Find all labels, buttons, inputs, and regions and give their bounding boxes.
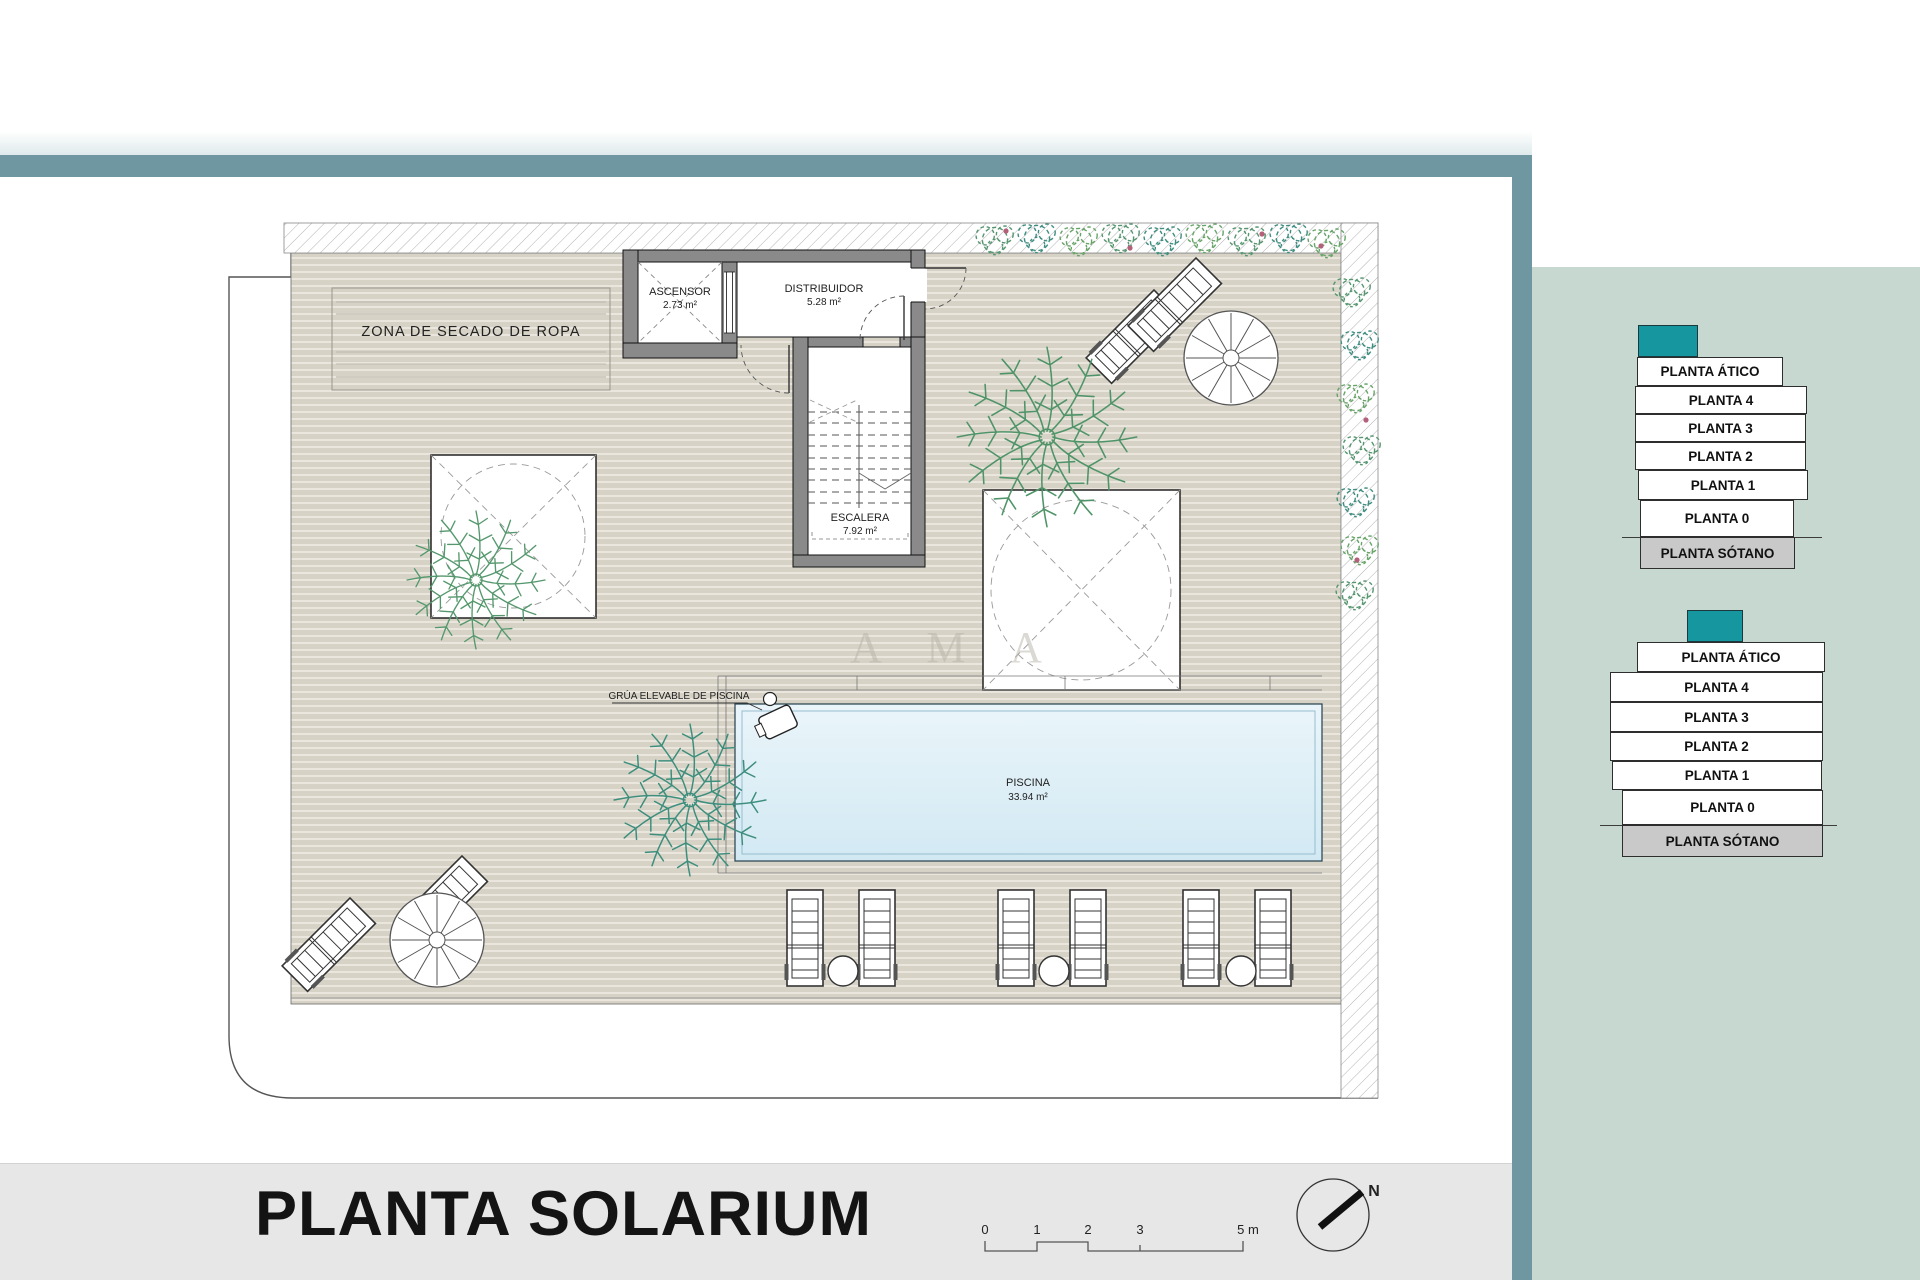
ascensor-area: 2.73 m² <box>663 300 698 311</box>
side-table <box>1039 956 1069 986</box>
sunbed <box>996 890 1037 986</box>
parasol <box>1184 311 1278 405</box>
parasol <box>390 893 484 987</box>
side-table <box>828 956 858 986</box>
site-boundary <box>229 223 1378 1098</box>
distribuidor-label: DISTRIBUIDOR <box>785 283 864 295</box>
sunbed <box>857 890 898 986</box>
ascensor-label: ASCENSOR <box>649 286 711 298</box>
stack1-level-p4: PLANTA 4 <box>1635 386 1807 414</box>
sunbed <box>1253 890 1294 986</box>
sunbed <box>1181 890 1222 986</box>
zona-secado-label: ZONA DE SECADO DE ROPA <box>361 324 580 340</box>
core-block: ASCENSOR 2.73 m² DISTRIBUIDOR 5.28 m² ES… <box>623 250 966 567</box>
hatch-band-top <box>284 223 1378 253</box>
stack2-level-sotano: PLANTA SÓTANO <box>1622 825 1823 857</box>
stack2-level-atico: PLANTA ÁTICO <box>1637 642 1825 672</box>
sunbed-corner-topright <box>1084 256 1278 405</box>
stack1-level-p1: PLANTA 1 <box>1638 470 1808 500</box>
top-accent-bar <box>0 155 1532 177</box>
right-accent-bar <box>1512 155 1532 1280</box>
page: PLANTA SOLARIUM <box>0 0 1920 1280</box>
accent-bar-glow <box>0 131 1532 155</box>
sunbed <box>785 890 826 986</box>
deck-area <box>291 253 1341 1004</box>
palm-tree <box>957 347 1136 526</box>
stack2-level-p0: PLANTA 0 <box>1622 790 1823 825</box>
stack2-level-p1: PLANTA 1 <box>1612 761 1822 790</box>
stack2-roof-block <box>1687 610 1743 642</box>
sunbed <box>280 896 377 993</box>
pool-curb-lines <box>718 676 1322 873</box>
stack1-level-atico: PLANTA ÁTICO <box>1637 357 1783 386</box>
palm-tree <box>407 511 545 649</box>
sunbed <box>1126 256 1223 353</box>
sunbed <box>1068 890 1109 986</box>
stack2-level-p4: PLANTA 4 <box>1610 672 1823 702</box>
piscina-area: 33.94 m² <box>1008 792 1048 803</box>
stack1-roof-block <box>1638 325 1698 357</box>
skylight-right <box>983 490 1180 690</box>
watermark: A M A <box>850 623 1060 672</box>
pool-hoist: GRÚA ELEVABLE DE PISCINA <box>609 689 799 743</box>
stack1-level-p2: PLANTA 2 <box>1635 442 1806 470</box>
hatch-band-right <box>1341 223 1378 1098</box>
pool: PISCINA 33.94 m² <box>735 704 1322 861</box>
escalera-area: 7.92 m² <box>843 526 878 537</box>
sunbed-corner-bottomleft <box>280 854 489 993</box>
stack1-level-p3: PLANTA 3 <box>1635 414 1806 442</box>
skylight-left <box>431 455 596 618</box>
stack2-level-p3: PLANTA 3 <box>1610 702 1823 732</box>
distribuidor-area: 5.28 m² <box>807 297 842 308</box>
piscina-label: PISCINA <box>1006 777 1051 789</box>
grua-label: GRÚA ELEVABLE DE PISCINA <box>609 689 750 702</box>
stack1-level-p0: PLANTA 0 <box>1640 500 1794 537</box>
planting-border <box>976 224 1380 610</box>
page-title: PLANTA SOLARIUM <box>255 1178 872 1250</box>
sunbed <box>392 854 489 951</box>
stack2-level-p2: PLANTA 2 <box>1610 732 1823 761</box>
escalera-label: ESCALERA <box>831 512 890 524</box>
side-table <box>1226 956 1256 986</box>
zona-secado-area: ZONA DE SECADO DE ROPA <box>332 288 610 390</box>
palm-tree <box>614 724 766 876</box>
sunbed <box>1084 288 1181 385</box>
stack1-level-sotano: PLANTA SÓTANO <box>1640 537 1795 569</box>
sunbed-row <box>785 890 1294 986</box>
